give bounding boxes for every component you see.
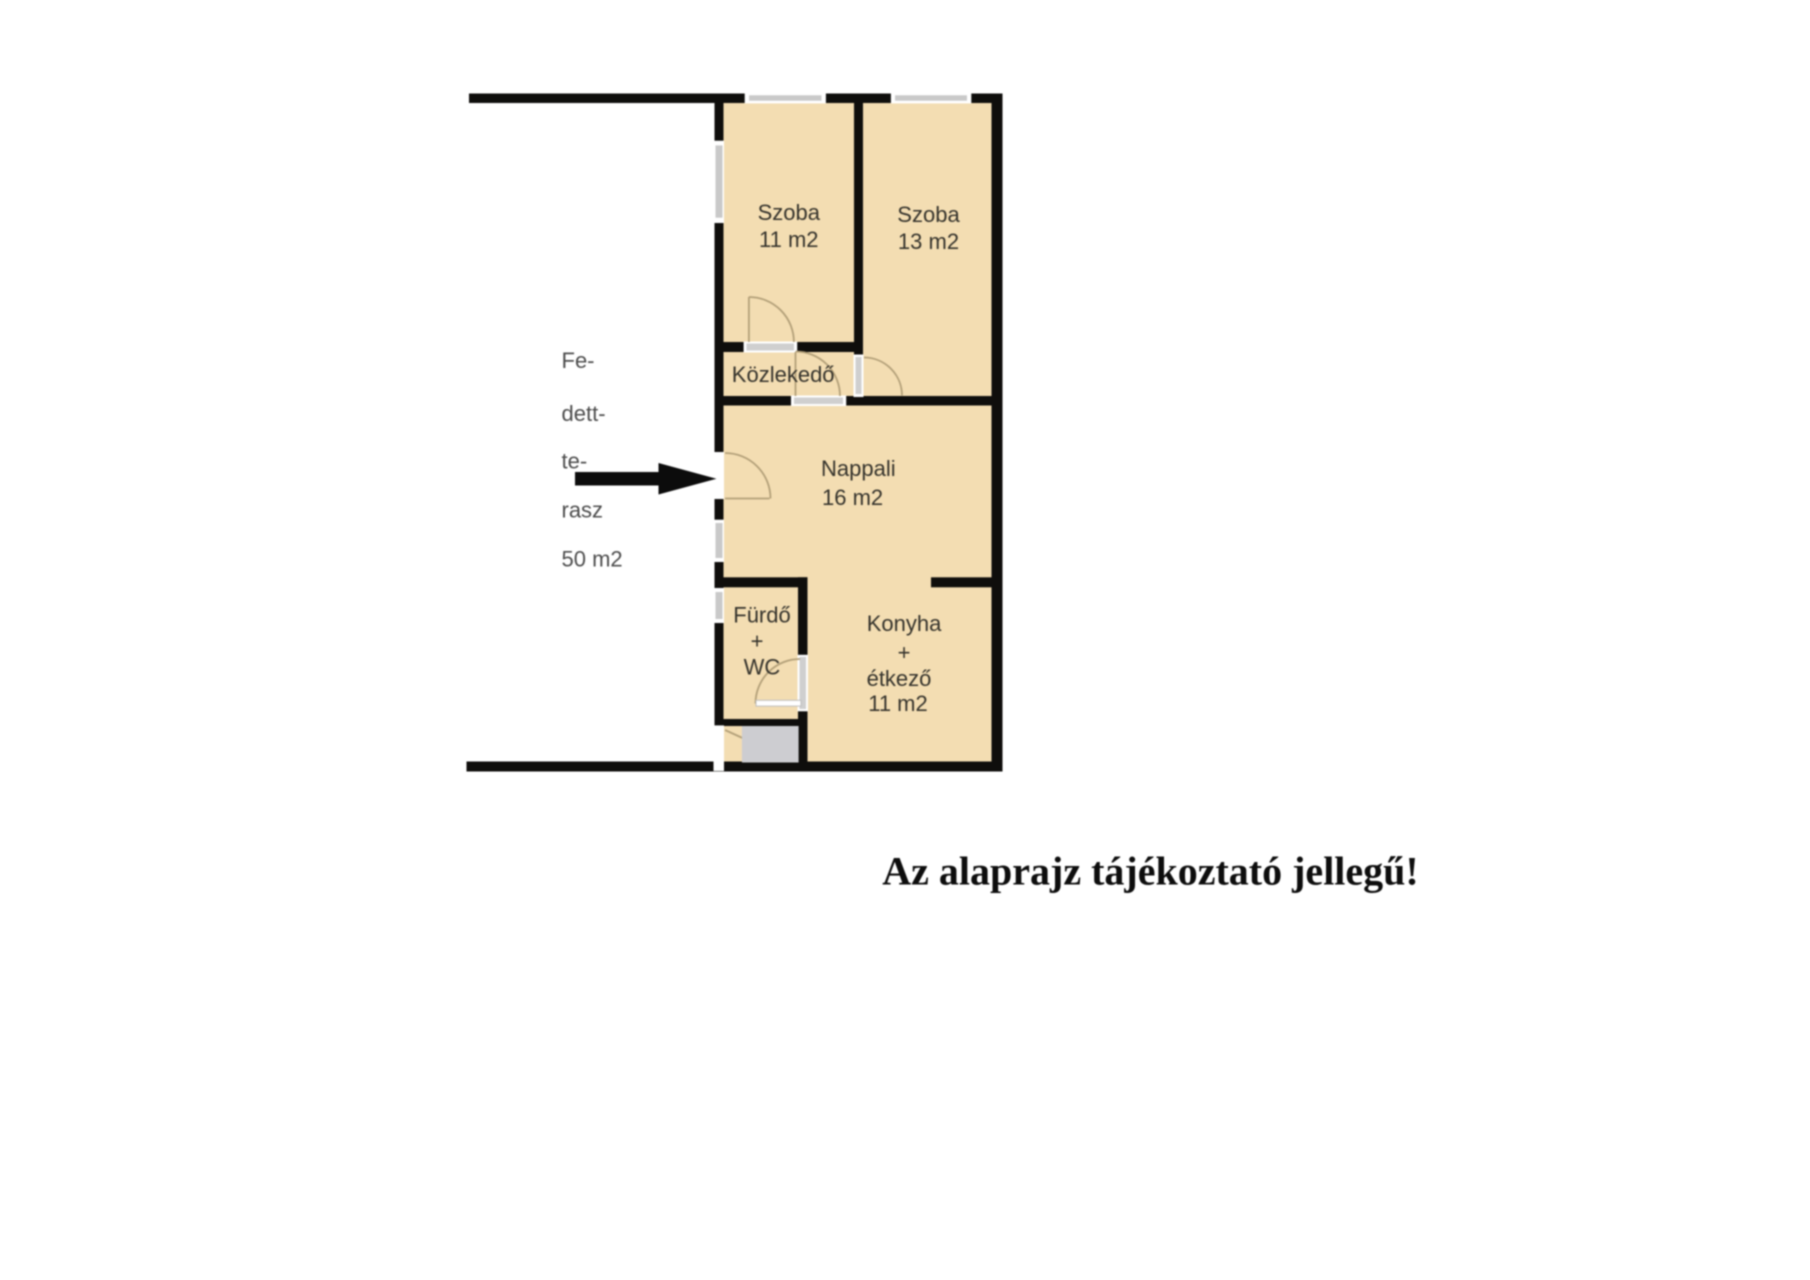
svg-text:11 m2: 11 m2 xyxy=(868,691,928,716)
svg-text:étkező: étkező xyxy=(867,666,932,691)
svg-text:Konyha: Konyha xyxy=(867,611,942,636)
svg-text:+: + xyxy=(751,629,764,654)
svg-text:rasz: rasz xyxy=(562,498,604,523)
svg-text:Szoba: Szoba xyxy=(897,202,960,227)
svg-text:16 m2: 16 m2 xyxy=(822,485,883,510)
svg-text:11 m2: 11 m2 xyxy=(759,227,819,252)
svg-text:Fe-: Fe- xyxy=(562,348,595,373)
svg-text:dett-: dett- xyxy=(562,401,606,426)
svg-text:13 m2: 13 m2 xyxy=(898,229,959,254)
svg-text:te-: te- xyxy=(562,449,588,474)
svg-text:Szoba: Szoba xyxy=(758,200,821,225)
svg-text:WC: WC xyxy=(744,655,781,680)
svg-text:Fürdő: Fürdő xyxy=(733,603,790,628)
svg-text:+: + xyxy=(898,640,911,665)
svg-text:Közlekedő: Közlekedő xyxy=(732,362,835,387)
svg-text:50 m2: 50 m2 xyxy=(562,547,623,572)
svg-text:Az alaprajz tájékoztató jelleg: Az alaprajz tájékoztató jellegű! xyxy=(882,849,1418,894)
svg-text:Nappali: Nappali xyxy=(821,456,896,481)
